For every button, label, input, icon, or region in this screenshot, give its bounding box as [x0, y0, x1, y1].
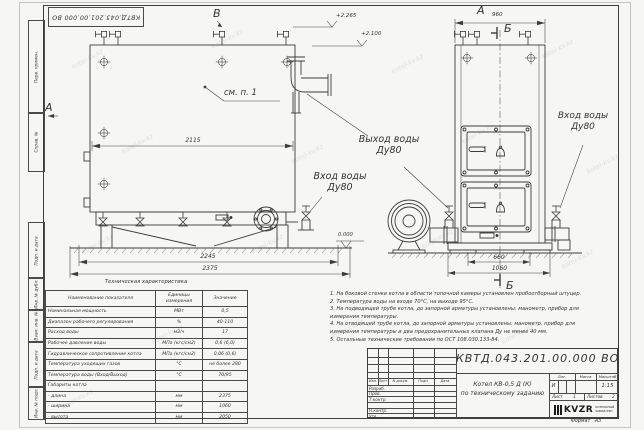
table-cell: МВт	[156, 307, 203, 318]
dim-2375: 2375	[160, 265, 260, 272]
section-marks	[491, 27, 500, 286]
divider	[368, 372, 456, 373]
note-line: 3. На подводящей трубе котла, до запорно…	[330, 306, 618, 314]
kvzr-logo-subtext: КОТЕЛЬНЫЙ ЗАВОД РЭП	[595, 406, 614, 413]
view-b-label: В	[213, 7, 221, 20]
table-cell	[203, 381, 248, 392]
table-row: Гидравлическое сопротивление котлаМПа (к…	[46, 349, 248, 360]
doc-name-line1: Котел КВ-0,5 Д (К)	[456, 381, 549, 388]
view-side	[70, 45, 352, 248]
note-line: измерения температуры.	[330, 314, 618, 322]
table-row: Диапазон рабочего регулирования%40-110	[46, 317, 248, 328]
inlet-water-left-dn: Ду80	[300, 182, 380, 193]
table-cell: 2375	[203, 391, 248, 402]
table-cell: 0,06 (0,6)	[203, 349, 248, 360]
dimension-lines	[48, 19, 583, 278]
table-cell: Диапазон рабочего регулирования	[46, 317, 156, 328]
title-block-designation: КВТД.043.201.00.000 ВО	[456, 352, 619, 365]
table-cell: 17	[203, 328, 248, 339]
sheets-value: 2	[612, 394, 615, 399]
title-block: КВТД.043.201.00.000 ВО Котел КВ-0,5 Д (К…	[367, 348, 618, 418]
col-list: Лист	[378, 379, 388, 383]
role-utv: Утв.	[369, 414, 378, 419]
table-row: Рабочее давление водыМПа (кгс/см2)0,6 (6…	[46, 338, 248, 349]
divider	[413, 349, 414, 419]
technical-notes: 1. На боковой стенке котла в области топ…	[330, 291, 618, 344]
table-row: - ширинамм1060	[46, 402, 248, 413]
view-a-arrow-label: А	[45, 101, 53, 114]
lit-value: И	[549, 383, 558, 389]
divider	[566, 380, 567, 394]
inlet-water-left-label: Вход воды Ду80	[300, 171, 380, 193]
table-cell: - длина	[46, 391, 156, 402]
tech-table: Наименование показателя Единицы измерени…	[45, 290, 248, 424]
table-cell: Температура воды (Вход/Выход)	[46, 370, 156, 381]
table-row: - высотамм2050	[46, 412, 248, 423]
tech-table-title: Техническая характеристика	[45, 279, 247, 285]
table-cell: Температура уходящих газов	[46, 359, 156, 370]
table-cell: мм	[156, 391, 203, 402]
dimension-arrowheads	[48, 21, 550, 276]
note-line: 1. На боковой стенке котла в области топ…	[330, 291, 618, 299]
divider	[368, 402, 456, 403]
note-line: 5. Остальные технические требования по О…	[330, 337, 618, 345]
kvzr-logo-sub2: ЗАВОД РЭП	[595, 410, 614, 413]
table-cell: МПа (кгс/см2)	[156, 349, 203, 360]
format-label: Формат	[571, 419, 590, 424]
view-front	[388, 30, 582, 288]
dim-960: 960	[492, 12, 503, 18]
divider	[584, 393, 585, 400]
col-ndokum: N докум.	[388, 379, 413, 383]
dim-2245: 2245	[163, 253, 253, 260]
table-cell: 40-110	[203, 317, 248, 328]
divider	[368, 413, 456, 414]
table-cell: м3/ч	[156, 328, 203, 339]
tech-table-header: Наименование показателя	[46, 291, 156, 307]
elevation-zero: 0.000	[338, 232, 353, 238]
doc-name-line2: по техническому заданию	[456, 390, 549, 397]
mass-label: Масса	[575, 375, 596, 379]
table-cell: 2050	[203, 412, 248, 423]
format-value: А3	[595, 419, 601, 424]
format-note: Формат А3	[556, 419, 616, 424]
table-row: - длинамм2375	[46, 391, 248, 402]
dim-2115: 2115	[163, 137, 223, 144]
role-prov: Пров.	[369, 391, 381, 396]
table-cell: мм	[156, 402, 203, 413]
table-row: Температура уходящих газов°Сне более 280	[46, 359, 248, 370]
inlet-water-left-line1: Вход воды	[300, 171, 380, 182]
section-b-top-label: Б	[504, 22, 512, 35]
outlet-water-line1: Выход воды	[343, 134, 435, 145]
kvzr-logo-icon	[554, 405, 562, 415]
scale-value: 1:15	[596, 383, 619, 389]
inlet-water-right-line1: Вход воды	[548, 111, 618, 122]
table-cell: 1060	[203, 402, 248, 413]
table-cell: мм	[156, 412, 203, 423]
sheet-label: Лист	[552, 394, 563, 399]
table-cell: Габариты котла	[46, 381, 156, 392]
note-line: измерения температуры и два предохраните…	[330, 329, 618, 337]
scale-label: Масштаб	[596, 375, 619, 379]
elevation-2100: +2.100	[361, 31, 381, 37]
table-cell: %	[156, 317, 203, 328]
table-cell: °С	[156, 359, 203, 370]
table-row: Температура воды (Вход/Выход)°С70/95	[46, 370, 248, 381]
table-cell: 0,5	[203, 307, 248, 318]
note-line: 4. На отводящей трубе котла, до запорной…	[330, 321, 618, 329]
divider	[368, 364, 456, 365]
table-cell: Рабочее давление воды	[46, 338, 156, 349]
drawing-sheet: kotel-kv.kz kotel-kv.kz kotel-kv.kz kote…	[0, 0, 644, 430]
tech-table-header: Значение	[203, 291, 248, 307]
table-cell: 70/95	[203, 370, 248, 381]
sheet-value: 1	[573, 394, 576, 399]
tech-table-header-row: Наименование показателя Единицы измерени…	[46, 291, 248, 307]
table-cell	[156, 381, 203, 392]
table-cell: не более 280	[203, 359, 248, 370]
table-cell: Расход воды	[46, 328, 156, 339]
table-cell: 0,6 (6,0)	[203, 338, 248, 349]
table-row: Габариты котла	[46, 381, 248, 392]
note-line: 2. Температура воды на входе 70°С, на вы…	[330, 299, 618, 307]
role-razrab: Разраб.	[369, 386, 385, 391]
divider	[549, 380, 619, 381]
role-nkontr: Н.контр.	[369, 408, 387, 413]
see-note-label: см. п. 1	[224, 88, 257, 98]
table-cell: МПа (кгс/см2)	[156, 338, 203, 349]
table-row: Расход водым3/ч17	[46, 328, 248, 339]
view-a-top-label: А	[477, 4, 485, 17]
outlet-water-label: Выход воды Ду80	[343, 134, 435, 156]
dim-660: 660	[469, 254, 529, 261]
col-data: Дата	[434, 379, 456, 383]
table-row: Номинальная мощностьМВт0,5	[46, 307, 248, 318]
divider	[434, 349, 435, 419]
sheets-label: Листов	[587, 394, 603, 399]
outlet-water-dn: Ду80	[343, 145, 435, 156]
table-cell: Гидравлическое сопротивление котла	[46, 349, 156, 360]
divider	[368, 357, 456, 358]
tech-table-header: Единицы измерения	[156, 291, 203, 307]
table-cell: °С	[156, 370, 203, 381]
dim-1060: 1060	[467, 265, 532, 272]
lit-label: Лит.	[549, 375, 575, 379]
col-izm: Изм.	[368, 379, 378, 383]
kvzr-logo-name: KVZR	[564, 405, 593, 415]
table-cell: Номинальная мощность	[46, 307, 156, 318]
inlet-water-right-label: Вход воды Ду80	[548, 111, 618, 133]
table-cell: - ширина	[46, 402, 156, 413]
inlet-water-right-dn: Ду80	[548, 122, 618, 133]
divider	[368, 391, 456, 392]
kvzr-logo: KVZR КОТЕЛЬНЫЙ ЗАВОД РЭП	[549, 400, 619, 419]
table-cell: - высота	[46, 412, 156, 423]
elevation-2265: +2.265	[336, 13, 356, 19]
role-tkontr: Т.контр.	[369, 397, 387, 402]
col-podp: Подп.	[413, 379, 434, 383]
